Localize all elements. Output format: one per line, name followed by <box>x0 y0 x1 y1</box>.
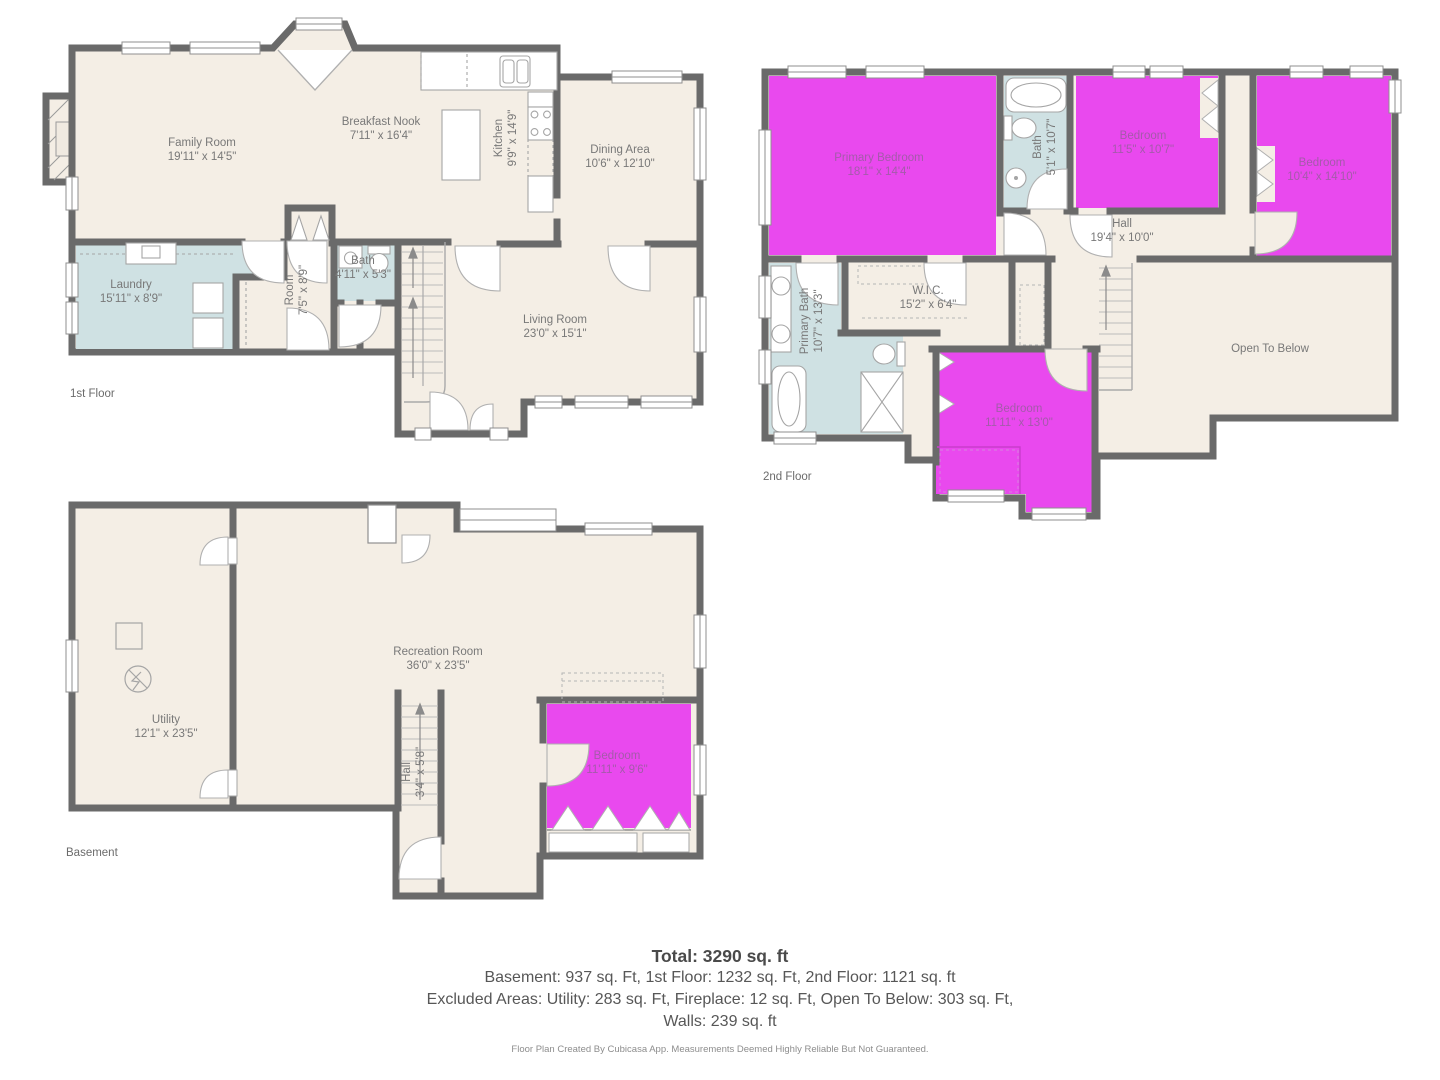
second-floor-plan <box>759 66 1401 520</box>
chimney-box <box>368 505 396 543</box>
primary-bedroom-fill <box>769 76 996 255</box>
floor-label-2nd: 2nd Floor <box>763 471 812 483</box>
summary-total: Total: 3290 sq. ft <box>0 946 1440 967</box>
floor-label-basement: Basement <box>66 847 118 859</box>
bedroom2-fill <box>1076 76 1218 208</box>
first-floor-footprint <box>72 24 700 434</box>
washer-icon <box>193 283 223 313</box>
toilet-icon <box>368 246 390 254</box>
kitchen-island <box>442 110 480 180</box>
floor-label-1st: 1st Floor <box>70 388 115 400</box>
footer-credit: Floor Plan Created By Cubicasa App. Meas… <box>0 1044 1440 1055</box>
floorplan-page: Family Room19'11" x 14'5" Breakfast Nook… <box>0 0 1440 1080</box>
summary-by-floor: Basement: 937 sq. Ft, 1st Floor: 1232 sq… <box>0 969 1440 987</box>
toilet-icon <box>897 342 905 366</box>
summary-excluded: Excluded Areas: Utility: 283 sq. Ft, Fir… <box>0 991 1440 1009</box>
basement-plan <box>66 505 706 896</box>
dryer-icon <box>193 318 223 348</box>
floorplan-canvas <box>0 0 1440 1080</box>
bathtub-icon <box>772 366 806 432</box>
toilet-icon <box>1004 116 1012 140</box>
summary-walls: Walls: 239 sq. ft <box>0 1013 1440 1031</box>
first-floor-plan <box>46 18 706 440</box>
